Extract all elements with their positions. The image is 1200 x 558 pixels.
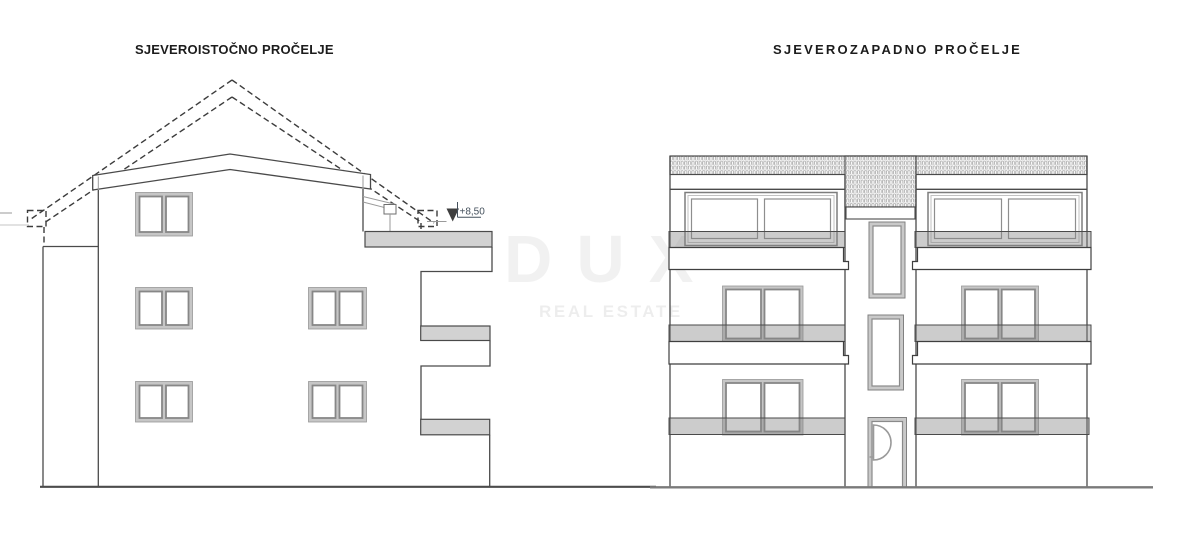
dashed-eave-left [28,211,47,227]
roof-terrace-slab [365,232,492,248]
building-walls [43,189,363,487]
balcony-section-profile [365,232,492,487]
window-attic [136,193,193,237]
balcony-slab-low [421,419,490,435]
window-floor2-right [309,288,367,330]
entrance-door [868,418,907,488]
right-elevation-drawing [650,156,1153,487]
elevation-value-label: +8,50 [460,207,486,218]
stair-tower-tile-panel [845,156,916,207]
window-floor1-left [136,382,193,423]
window-floor2-left [136,288,193,330]
level-reference-lines [0,213,29,225]
gutter-box [384,205,396,215]
stairwell-window-upper [869,222,905,298]
elevation-sheet: DUX REAL ESTATE SJEVEROISTOČNO PROČELJE … [0,0,1200,558]
roof-fascia-band [93,154,371,190]
elevation-drawings-canvas: +8,50 [0,0,1200,558]
stairwell-window-lower [868,315,904,390]
left-elevation-drawing: +8,50 [0,80,656,487]
elevation-marker: +8,50 [427,202,485,222]
balcony-slab-mid [421,326,490,341]
stair-tower-lintel [846,207,915,219]
window-floor1-right [309,382,367,423]
